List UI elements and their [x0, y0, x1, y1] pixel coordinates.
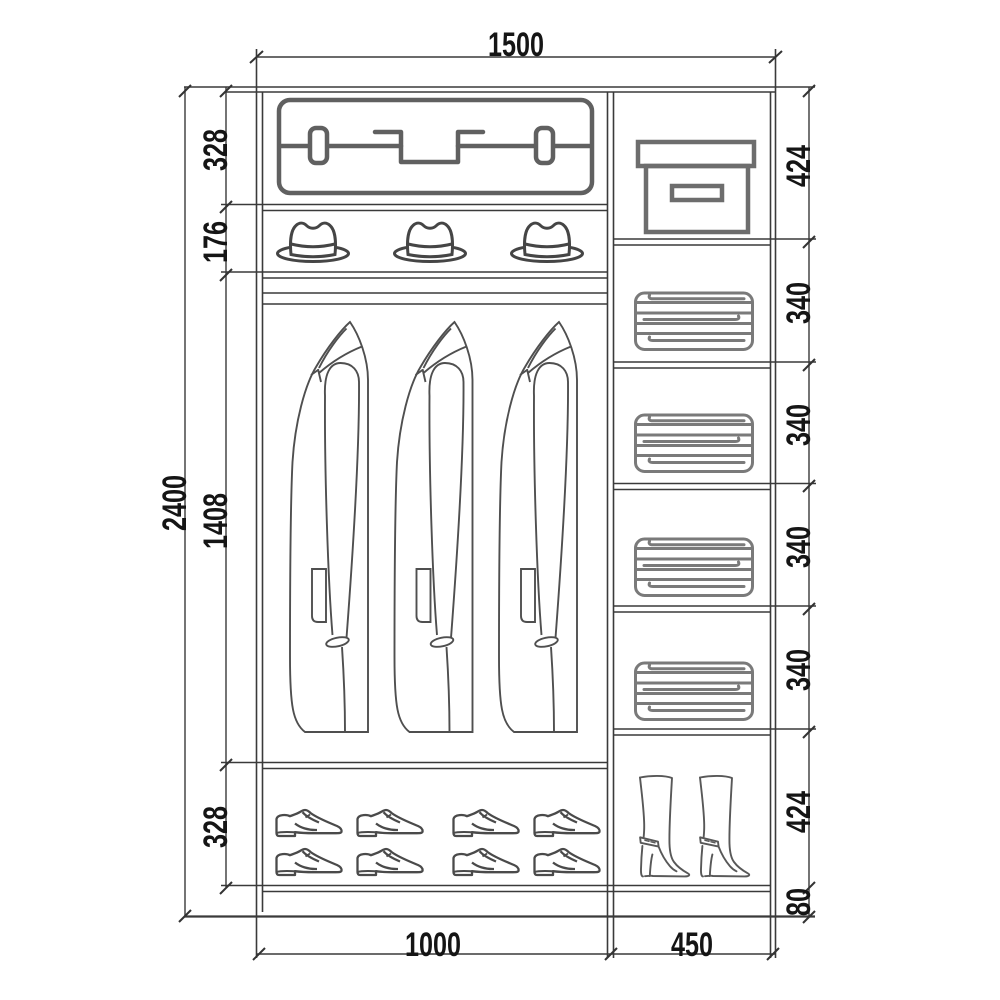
- svg-text:328: 328: [197, 129, 235, 171]
- svg-text:328: 328: [197, 806, 235, 848]
- svg-text:450: 450: [671, 926, 713, 964]
- svg-text:1408: 1408: [197, 493, 235, 549]
- svg-text:2400: 2400: [156, 475, 194, 531]
- svg-text:340: 340: [780, 526, 818, 568]
- svg-text:424: 424: [780, 145, 818, 187]
- svg-text:340: 340: [780, 282, 818, 324]
- svg-text:1500: 1500: [488, 26, 544, 64]
- svg-text:1000: 1000: [405, 926, 461, 964]
- svg-text:80: 80: [780, 888, 818, 916]
- svg-text:340: 340: [780, 649, 818, 691]
- svg-text:340: 340: [780, 404, 818, 446]
- svg-text:424: 424: [780, 791, 818, 833]
- svg-text:176: 176: [197, 221, 235, 263]
